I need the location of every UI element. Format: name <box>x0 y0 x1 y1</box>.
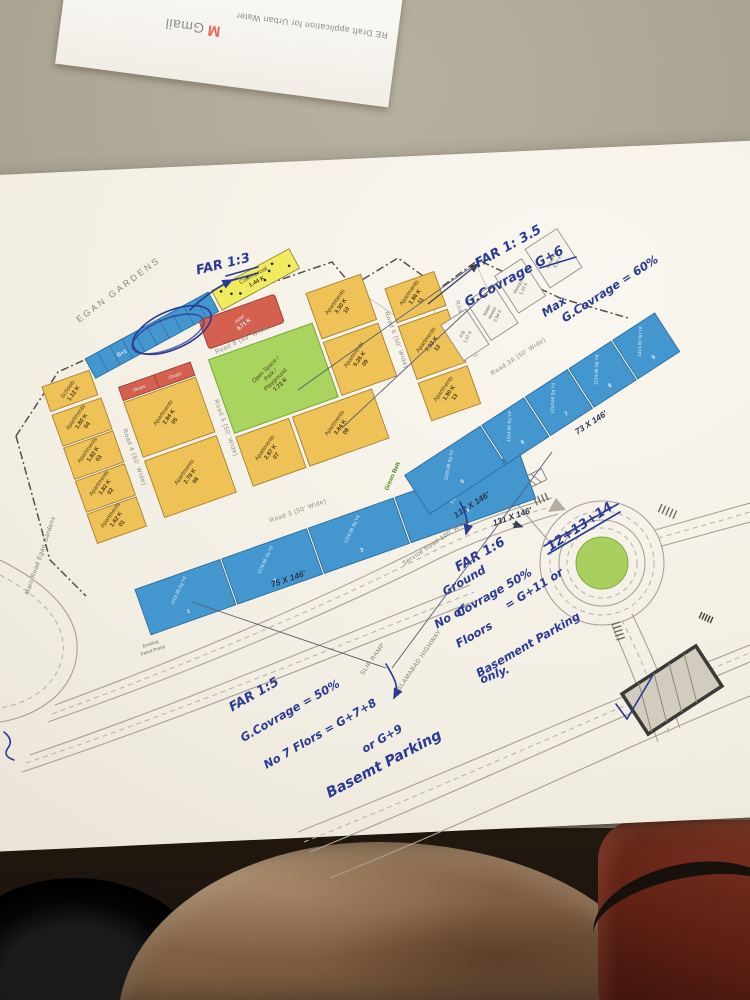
underpass-arrow-icon <box>548 498 566 512</box>
svg-text:No 7 Flors = G+7+8: No 7 Flors = G+7+8 <box>261 695 379 771</box>
photo-of-site-plan: RE Draft application for Urban Water M G… <box>0 0 750 1000</box>
main-road-label: Main Road Egan Gardens <box>24 515 57 595</box>
estate-name-label: EGAN GARDENS <box>74 255 162 325</box>
bridge-structure <box>622 646 722 734</box>
roundabout-green-island <box>576 537 628 589</box>
slip-ramp-label: SLIP RAMP <box>359 642 386 677</box>
road3-label: Road 3 (50' Wide) <box>269 498 328 525</box>
highway-label: ISLAMABAD HIGHWAY <box>395 629 443 694</box>
pen-scribble <box>4 732 14 760</box>
green-belt-label: Green Belt <box>384 462 402 492</box>
svg-text:Floors: Floors <box>453 618 495 650</box>
site-plan-drawing: G+1 Commercial 1.44 K Schools 1.12 K Apa… <box>0 0 750 1000</box>
petrol-pump-label: Existing Petrol Pump <box>138 637 166 657</box>
road3a-label: Road 3A (50' Wide) <box>490 336 548 377</box>
